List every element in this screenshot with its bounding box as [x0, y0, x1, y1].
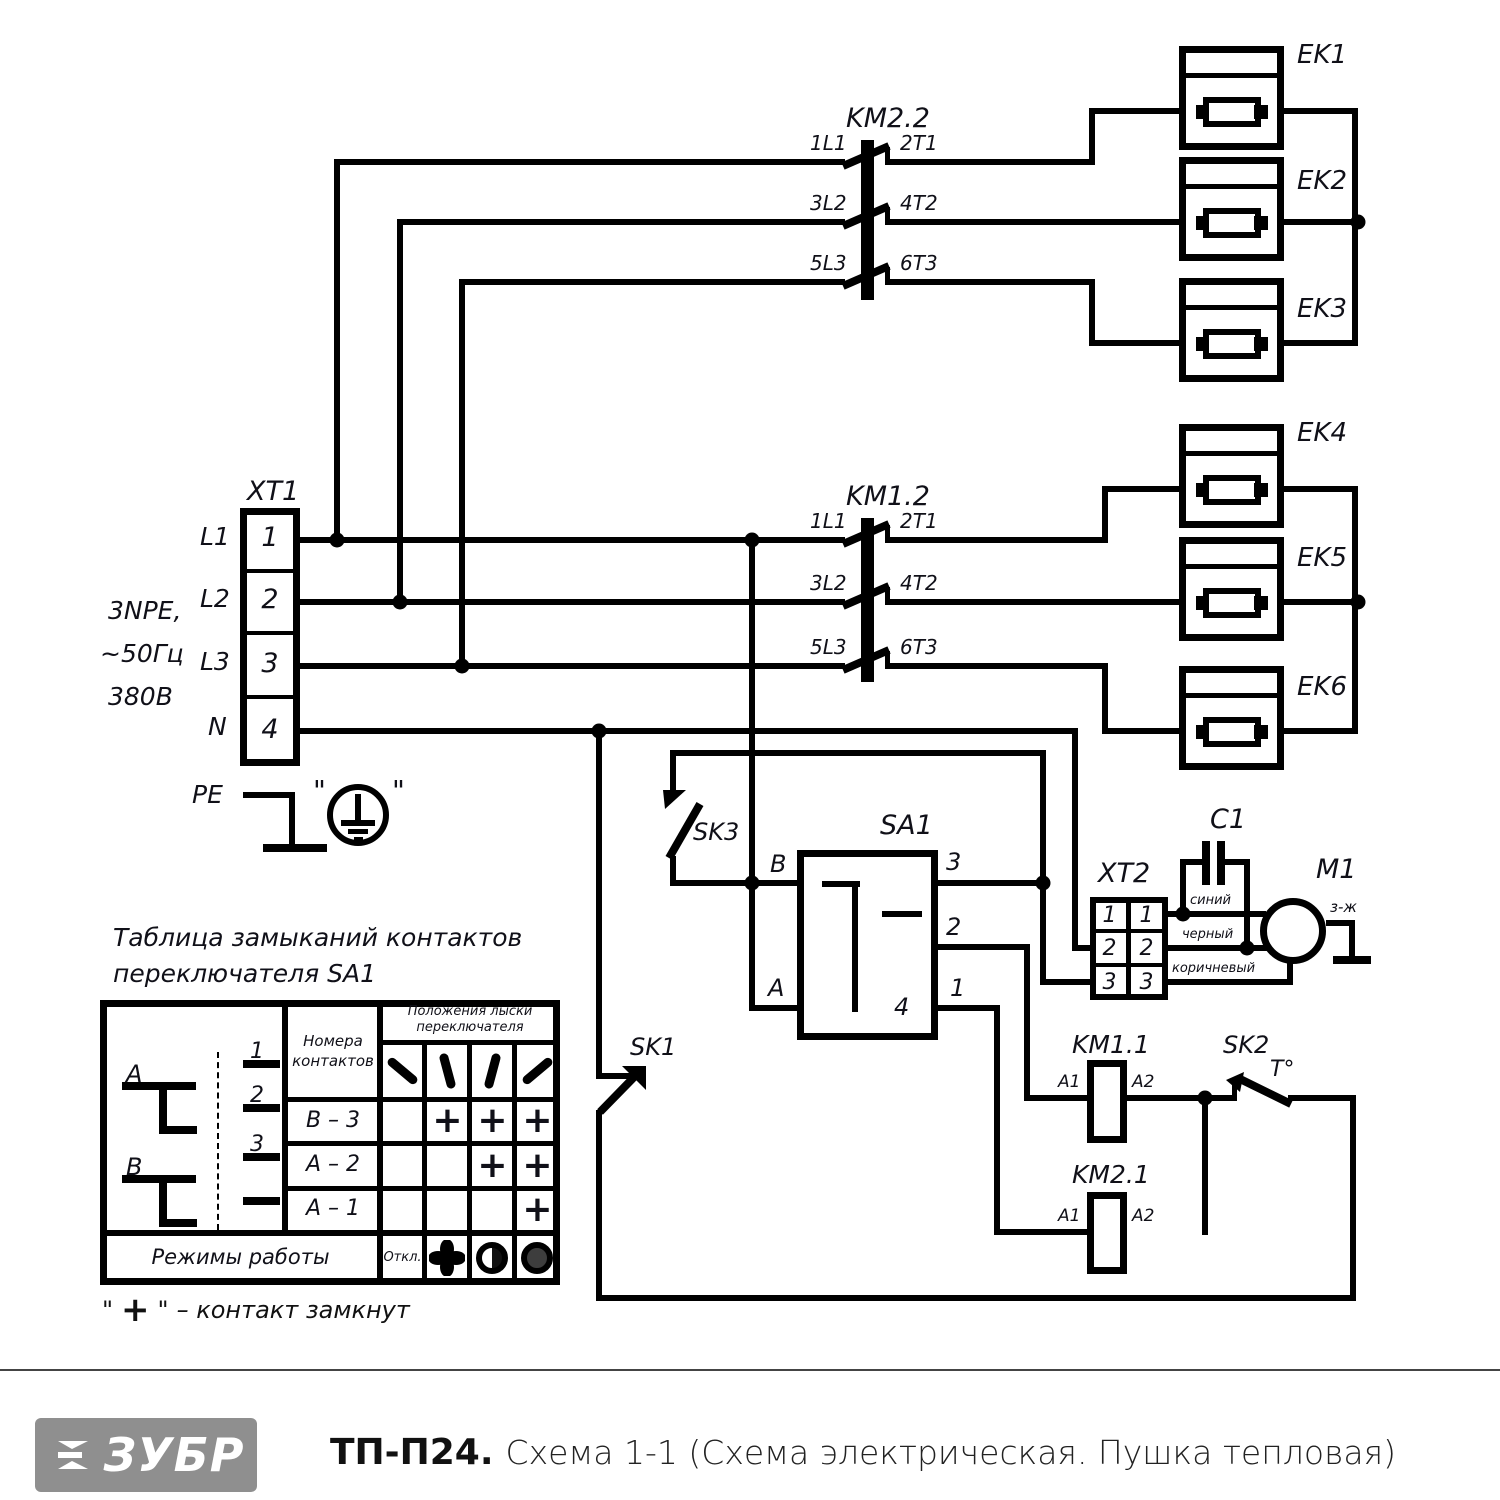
wire-color-black: черный [1182, 928, 1233, 942]
heater-element [1254, 337, 1268, 351]
junction [1036, 876, 1051, 891]
km21-a2: A2 [1132, 1208, 1154, 1226]
wire [749, 537, 755, 1011]
mode-off-label: Откл. [380, 1250, 425, 1265]
heater-label: EK2 [1297, 168, 1347, 195]
wire [1284, 108, 1358, 114]
supply-spec: ~50Гц [100, 641, 184, 667]
wire [1180, 859, 1204, 865]
capacitor-plate [1217, 841, 1225, 885]
heater-element [1203, 475, 1261, 505]
heater-element [1203, 329, 1261, 359]
wire [400, 219, 845, 225]
km12-contact-label: 2T1 [900, 511, 938, 532]
contact-hook [885, 147, 890, 161]
contact-hook [885, 587, 890, 601]
legend: "+" – контакт замкнут [102, 1290, 410, 1330]
junction [393, 595, 408, 610]
xt1-terminal-number: 3 [240, 648, 300, 679]
wire [1024, 1095, 1087, 1101]
km22-contact-label: 6T3 [900, 253, 938, 274]
heater-label: EK5 [1297, 545, 1347, 572]
wire-color-blue: синий [1190, 894, 1231, 908]
wire [1072, 728, 1078, 951]
phase-label-l2: L2 [200, 586, 230, 612]
wire [1127, 1095, 1235, 1101]
pe-earth-symbol [354, 837, 363, 841]
diagram-link [159, 1082, 167, 1130]
phase-label-l1: L1 [200, 524, 230, 550]
diagram-stub [243, 1153, 280, 1161]
pe-quote-right: " [392, 776, 405, 805]
km12-contact-label: 6T3 [900, 637, 938, 658]
wire [1352, 486, 1358, 734]
supply-spec: 380В [108, 684, 173, 710]
legend-quote: " [158, 1296, 169, 1324]
km22-contact-label: 5L3 [810, 253, 847, 274]
km11-label: KM1.1 [1072, 1032, 1150, 1058]
wire [1284, 486, 1358, 492]
km12-contact-label: 1L1 [810, 511, 847, 532]
wire [1225, 859, 1250, 865]
wire [1349, 920, 1355, 960]
closure-mark: + [470, 1145, 515, 1186]
km12-contact-label: 5L3 [810, 637, 847, 658]
km22-contact-label: 2T1 [900, 133, 938, 154]
table-title: переключателя SA1 [113, 961, 376, 987]
wire [300, 537, 845, 543]
heater-label: EK6 [1297, 674, 1347, 701]
wire [300, 599, 845, 605]
junction [330, 533, 345, 548]
wire [1168, 979, 1293, 985]
contact-hook [885, 525, 890, 539]
km11-a2: A2 [1132, 1074, 1154, 1092]
earth-bar [1333, 956, 1371, 964]
pe-wire [289, 792, 295, 850]
xt1-label: XT1 [247, 478, 299, 506]
phase-label-l3: L3 [200, 649, 230, 675]
xt1-terminal-number: 1 [240, 522, 300, 553]
xt2-cell: 3 [1130, 970, 1163, 995]
heater-element [1203, 717, 1261, 747]
table-row-contacts: А – 1 [288, 1196, 378, 1221]
wire [462, 279, 845, 285]
wire [334, 159, 340, 543]
closure-mark: + [470, 1100, 515, 1141]
xt2-cell: 2 [1130, 936, 1163, 961]
wire [885, 663, 1108, 669]
wire [885, 279, 1095, 285]
closure-mark: + [515, 1100, 560, 1141]
wire [1232, 1080, 1237, 1101]
pe-earth-symbol [355, 794, 361, 822]
wire [670, 750, 1046, 756]
wire [1102, 486, 1108, 543]
junction [1351, 595, 1366, 610]
wire [670, 750, 676, 795]
pe-earth-symbol [341, 820, 375, 826]
km11-coil [1087, 1060, 1127, 1143]
schema-caption: Схема 1-1 (Схема электрическая. Пушка те… [506, 1433, 1397, 1472]
supply-spec: 3NPE, [108, 598, 181, 624]
heater-element [1254, 105, 1268, 119]
km22-contact-label: 4T2 [900, 193, 938, 214]
wire [337, 159, 845, 165]
wire [885, 219, 1179, 225]
diagram-stub [243, 1104, 280, 1112]
heater-element [1254, 725, 1268, 739]
contact-hook [885, 267, 890, 281]
wire [1288, 1095, 1356, 1101]
xt2-divider [1094, 929, 1164, 933]
wire [749, 1005, 801, 1011]
junction [1198, 1091, 1213, 1106]
km22-contact-label: 1L1 [810, 133, 847, 154]
heater-divider [1186, 73, 1277, 78]
km12-contact-label: 3L2 [810, 573, 847, 594]
wire [1089, 108, 1179, 114]
km21-a1: A1 [1058, 1208, 1080, 1226]
legend-quote: " [102, 1296, 113, 1324]
sk2-label: SK2 [1223, 1033, 1269, 1058]
sa1-pin-a: A [768, 976, 784, 1001]
wire [670, 880, 801, 886]
junction [745, 876, 760, 891]
pe-foot [263, 844, 327, 852]
footer-title: ТП-П24. Схема 1-1 (Схема электрическая. … [330, 1432, 1396, 1473]
heater-divider [1186, 305, 1277, 310]
schematic-page: 1 2 3 4 1 1 2 2 3 3 [0, 0, 1500, 1500]
legend-plus: + [121, 1290, 150, 1330]
diagram-stub [243, 1060, 280, 1068]
positions-header: Положения лыски переключателя [383, 1004, 557, 1037]
capacitor-plate [1202, 841, 1210, 885]
diagram-link [159, 1175, 167, 1223]
km21-coil [1087, 1192, 1127, 1274]
junction [1176, 907, 1191, 922]
xt2-label: XT2 [1098, 860, 1150, 888]
junction [1351, 215, 1366, 230]
km22-contact-label: 3L2 [810, 193, 847, 214]
xt2-cell: 1 [1130, 903, 1163, 928]
closure-mark: + [515, 1145, 560, 1186]
km12-contact-label: 4T2 [900, 573, 938, 594]
sa1-pin-b: B [770, 852, 786, 877]
wire [1244, 859, 1250, 951]
heater-element [1254, 216, 1268, 230]
wire [300, 663, 845, 669]
sa1-inner-symbol [882, 911, 922, 917]
heater-label: EK1 [1297, 42, 1347, 69]
contact-hook [885, 207, 890, 221]
junction [745, 533, 760, 548]
km11-a1: A1 [1058, 1074, 1080, 1092]
xt1-divider [243, 695, 297, 699]
c1-label: C1 [1210, 806, 1246, 834]
pe-wire [243, 792, 295, 798]
m1-motor [1260, 898, 1326, 964]
contact-hook [885, 651, 890, 665]
modes-label: Режимы работы [103, 1245, 378, 1269]
footer-separator [0, 1369, 1500, 1371]
heater-element [1254, 483, 1268, 497]
wire [1202, 1095, 1208, 1235]
wire [596, 728, 602, 1075]
wire [596, 1110, 602, 1301]
heater-element [1254, 596, 1268, 610]
wire [938, 880, 1046, 886]
wire [885, 159, 1095, 165]
pe-earth-symbol [348, 829, 368, 834]
heater-divider [1186, 184, 1277, 189]
table-row-contacts: В – 3 [288, 1108, 378, 1133]
junction [1240, 941, 1255, 956]
table-title: Таблица замыканий контактов [113, 925, 522, 951]
xt1-terminal-number: 2 [240, 584, 300, 615]
wire [1350, 1095, 1356, 1301]
wire [1040, 750, 1046, 985]
table-grid [103, 1230, 557, 1236]
sk1-label: SK1 [630, 1035, 676, 1060]
heater-divider [1186, 564, 1277, 569]
xt1-divider [243, 631, 297, 635]
sa1-pin-1: 1 [950, 976, 965, 1001]
wire [1089, 279, 1095, 346]
sa1-label: SA1 [880, 812, 933, 840]
xt1-divider [243, 569, 297, 573]
table-grid [383, 1040, 557, 1045]
xt1-terminal-number: 4 [240, 714, 300, 745]
wire-color-earth: з-ж [1330, 900, 1357, 916]
wire [1284, 340, 1358, 346]
xt2-divider [1094, 963, 1164, 967]
sa1-pin-3: 3 [946, 850, 961, 875]
xt2-cell: 1 [1093, 903, 1126, 928]
mode-fan-icon [429, 1240, 465, 1276]
junction [455, 659, 470, 674]
sk3-label: SK3 [693, 820, 739, 845]
sa1-pin-2: 2 [946, 915, 961, 940]
diagram-stub [243, 1197, 280, 1205]
junction [592, 724, 607, 739]
wire [1284, 728, 1358, 734]
phase-label-n: N [208, 714, 227, 740]
km22-linkage-bar [861, 140, 874, 300]
zubr-logo-text: ЗУБР [104, 1428, 245, 1482]
wire [994, 1229, 1087, 1235]
diagram-dashed-link [217, 1052, 219, 1230]
mode-full-power-icon [521, 1242, 553, 1274]
km21-label: KM2.1 [1072, 1162, 1150, 1188]
wire [1102, 486, 1179, 492]
heater-label: EK4 [1297, 420, 1347, 447]
closure-mark: + [425, 1100, 470, 1141]
heater-label: EK3 [1297, 296, 1347, 323]
wire [397, 219, 403, 605]
sa1-pin-4: 4 [894, 995, 909, 1020]
wire [1102, 728, 1179, 734]
km12-linkage-bar [861, 518, 874, 682]
wire [459, 279, 465, 669]
wire [885, 599, 1179, 605]
legend-text: – контакт замкнут [177, 1296, 410, 1324]
zubr-logo-icon [48, 1435, 94, 1475]
zubr-logo: ЗУБР [35, 1418, 257, 1492]
wire [1102, 663, 1108, 734]
sa1-inner-symbol [852, 881, 858, 1012]
wire [1089, 108, 1095, 165]
heater-element [1203, 588, 1261, 618]
closure-mark: + [515, 1189, 560, 1230]
table-row-contacts: А – 2 [288, 1152, 378, 1177]
wire [938, 944, 1030, 950]
wire [1040, 979, 1092, 985]
sa1-switch-box[interactable] [797, 850, 938, 1040]
m1-label: M1 [1316, 856, 1356, 884]
mode-half-power-icon [476, 1242, 508, 1274]
km22-label: KM2.2 [846, 105, 930, 133]
wire [1284, 219, 1358, 225]
model-name: ТП-П24. [330, 1432, 494, 1473]
wire [938, 1005, 1000, 1011]
wire [885, 537, 1108, 543]
heater-element [1203, 97, 1261, 127]
heater-divider [1186, 693, 1277, 698]
wire [596, 1295, 1356, 1301]
contacts-header: Номера контактов [288, 1032, 378, 1071]
pe-label: PE [192, 782, 223, 808]
wire [1284, 599, 1358, 605]
wire [994, 1005, 1000, 1235]
xt2-cell: 2 [1093, 936, 1126, 961]
diagram-pole-line [159, 1126, 197, 1134]
heater-element [1203, 208, 1261, 238]
pe-quote-left: " [313, 776, 326, 805]
km12-label: KM1.2 [846, 483, 930, 511]
diagram-pole-line [159, 1219, 197, 1227]
wire [1024, 944, 1030, 1101]
xt2-cell: 3 [1093, 970, 1126, 995]
wire [1089, 340, 1179, 346]
wire-color-brown: коричневый [1172, 962, 1255, 976]
heater-divider [1186, 451, 1277, 456]
wire [300, 728, 1075, 734]
sk2-temp-label: T° [1270, 1058, 1294, 1081]
table-grid [422, 1042, 427, 1282]
wire [596, 1073, 638, 1079]
